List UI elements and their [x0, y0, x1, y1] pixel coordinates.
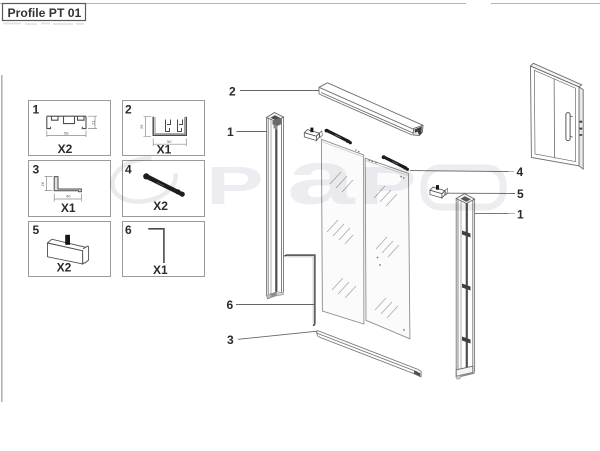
svg-text:a: a: [287, 136, 357, 221]
svg-text:P: P: [206, 156, 264, 216]
svg-text:P: P: [359, 156, 417, 216]
